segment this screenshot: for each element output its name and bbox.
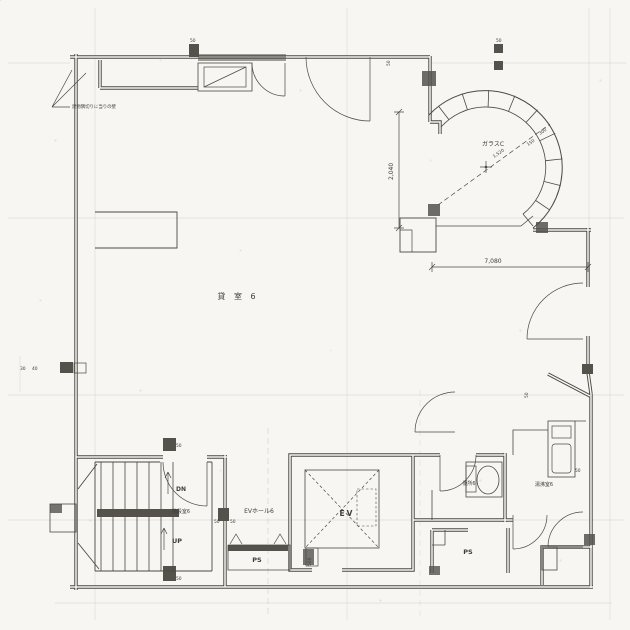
tick-0: 50	[190, 38, 196, 44]
ps-right-label: PS	[463, 548, 473, 556]
labels: 建物隅切りに当りの壁 ガラスC 1,520 2,040 7,080 貸 室 6 …	[20, 38, 581, 582]
wall-tick-blocks	[50, 44, 595, 581]
wall-notch	[95, 212, 177, 248]
glass-label: ガラスC	[482, 140, 504, 148]
tick-11: 300	[538, 127, 548, 137]
up-label: UP	[172, 537, 182, 545]
note-label: 建物隅切りに当りの壁	[72, 103, 117, 110]
tick-8: 50	[524, 392, 530, 398]
dn-label: DN	[176, 486, 186, 493]
ev-hall-label: EVホール6	[244, 508, 274, 515]
tick-7: 40	[32, 366, 38, 372]
kitchenette-label: 湯沸室6	[535, 481, 553, 488]
dimension-lines	[394, 109, 591, 272]
corner-duct	[542, 547, 557, 570]
ev-label: EV	[340, 509, 355, 518]
toilet-room	[432, 455, 502, 520]
tick-6: 30	[20, 366, 26, 372]
room-label-main: 貸 室 6	[217, 291, 258, 301]
tick-12: 50	[176, 576, 182, 582]
pipe-shaft-right-step	[432, 530, 445, 545]
door-arc-toilet-corridor	[415, 392, 455, 432]
floor-plan-drawing: 建物隅切りに当りの壁 ガラスC 1,520 2,040 7,080 貸 室 6 …	[0, 0, 630, 630]
dim-bay-width: 7,080	[484, 258, 501, 265]
tick-2: 50	[496, 38, 502, 44]
entry-closet	[52, 63, 285, 107]
dim-bay-height: 2,040	[388, 163, 395, 180]
tick-9: 50	[575, 468, 581, 474]
tick-10: 150	[526, 138, 536, 148]
toilet-label: 便所6	[462, 480, 475, 487]
tick-5: 50	[176, 443, 182, 449]
stair-room-label: 階段室6	[172, 508, 190, 515]
door-arc-right-wall	[527, 283, 583, 339]
tick-1: 50	[386, 60, 392, 66]
tick-3: 50	[214, 519, 220, 525]
ps-left-label: PS	[252, 556, 262, 564]
door-arc-top	[306, 57, 370, 121]
floor-plan-sheet: 建物隅切りに当りの壁 ガラスC 1,520 2,040 7,080 貸 室 6 …	[0, 0, 630, 630]
pipe-shaft-left	[228, 534, 290, 570]
dim-ev-door: 500	[307, 557, 313, 566]
tick-4: 50	[230, 519, 236, 525]
elevator-shaft	[305, 470, 379, 566]
